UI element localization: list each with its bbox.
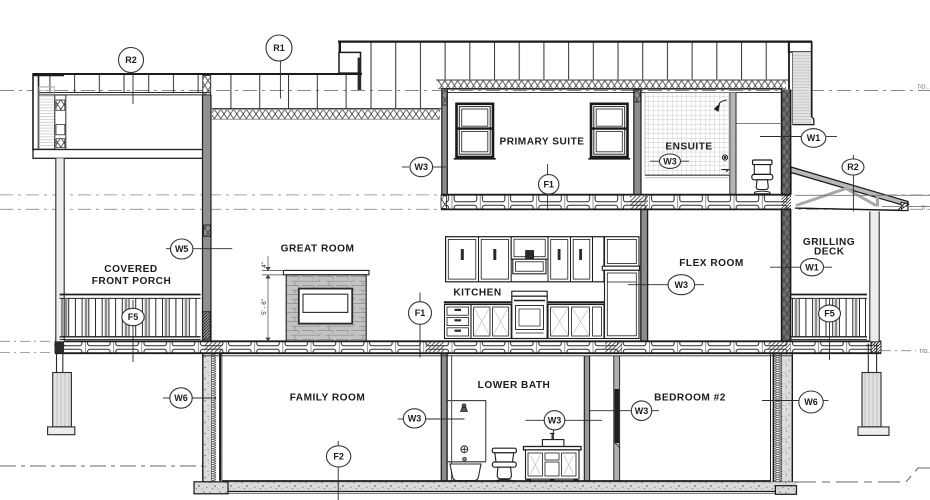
svg-text:KITCHEN: KITCHEN — [453, 288, 501, 299]
svg-text:DECK: DECK — [814, 247, 845, 258]
svg-text:T/O...: T/O... — [919, 349, 930, 355]
svg-text:ENSUITE: ENSUITE — [665, 141, 712, 152]
svg-text:R2: R2 — [847, 162, 859, 172]
svg-text:BEDROOM #2: BEDROOM #2 — [654, 392, 726, 403]
svg-text:COVERED: COVERED — [104, 264, 157, 275]
svg-text:F1: F1 — [543, 180, 554, 190]
svg-text:W3: W3 — [408, 414, 422, 424]
svg-text:FRONT PORCH: FRONT PORCH — [92, 276, 172, 287]
svg-text:FLEX ROOM: FLEX ROOM — [679, 258, 744, 269]
svg-text:5' - 6": 5' - 6" — [261, 299, 268, 315]
svg-text:W5: W5 — [175, 244, 189, 254]
svg-text:F2: F2 — [333, 452, 344, 462]
svg-text:GREAT ROOM: GREAT ROOM — [281, 244, 355, 255]
svg-text:F5: F5 — [128, 312, 139, 322]
svg-text:FAMILY ROOM: FAMILY ROOM — [290, 392, 366, 403]
svg-text:4": 4" — [261, 262, 268, 268]
svg-text:W3: W3 — [635, 406, 649, 416]
svg-text:W3: W3 — [663, 156, 677, 166]
svg-text:W3: W3 — [548, 416, 562, 426]
svg-text:W3: W3 — [675, 280, 689, 290]
svg-text:T/O...: T/O... — [917, 84, 930, 90]
svg-text:W6: W6 — [174, 393, 188, 403]
svg-text:PRIMARY SUITE: PRIMARY SUITE — [499, 136, 584, 147]
svg-text:LOWER BATH: LOWER BATH — [478, 380, 551, 391]
svg-text:R1: R1 — [273, 43, 285, 53]
svg-text:W6: W6 — [804, 397, 818, 407]
svg-text:W1: W1 — [805, 262, 819, 272]
svg-text:R2: R2 — [125, 55, 137, 65]
svg-text:F1: F1 — [415, 308, 426, 318]
svg-text:W3: W3 — [415, 162, 429, 172]
svg-text:T/..: T/.. — [921, 206, 928, 212]
svg-text:W1: W1 — [807, 133, 821, 143]
svg-text:F5: F5 — [824, 309, 835, 319]
